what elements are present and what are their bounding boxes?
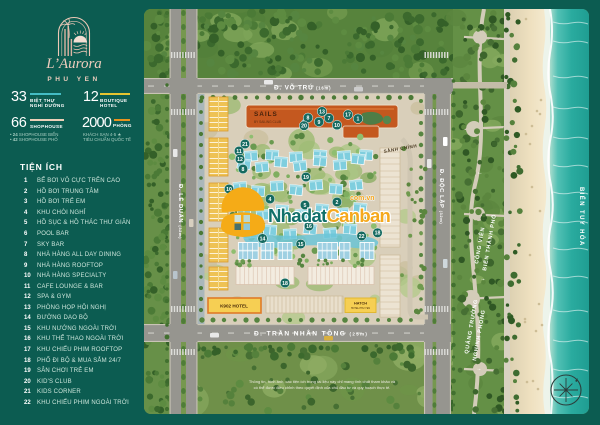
svg-text:1: 1 (357, 117, 360, 123)
svg-text:HATCH: HATCH (354, 302, 367, 306)
svg-text:Đ. LÊ DUẨN (32m): Đ. LÊ DUẨN (32m) (177, 184, 185, 239)
svg-text:14: 14 (260, 236, 266, 242)
svg-text:4: 4 (269, 197, 272, 203)
svg-text:BY SAILING CLUB: BY SAILING CLUB (254, 120, 281, 124)
svg-text:BIỂN TUY HÒA: BIỂN TUY HÒA (578, 187, 586, 247)
svg-text:NhadatCanban: NhadatCanban (268, 205, 391, 226)
svg-text:Đ. ĐỘC LẬP (32m): Đ. ĐỘC LẬP (32m) (438, 169, 446, 224)
svg-text:7: 7 (328, 116, 331, 122)
svg-text:10: 10 (334, 123, 340, 129)
svg-text:SAILS: SAILS (254, 111, 278, 118)
svg-text:18: 18 (282, 281, 288, 287)
svg-text:22: 22 (359, 234, 365, 240)
svg-text:có thể được điều chỉnh theo qu: có thể được điều chỉnh theo quyết định c… (254, 385, 391, 390)
svg-text:Thông tin, hình ảnh, các tiện: Thông tin, hình ảnh, các tiện ích trong … (249, 379, 396, 384)
svg-text:15: 15 (298, 242, 304, 248)
svg-text:8: 8 (307, 116, 310, 122)
svg-text:9: 9 (318, 120, 321, 126)
svg-text:19: 19 (303, 175, 309, 181)
svg-text:11: 11 (236, 149, 242, 155)
svg-text:17: 17 (345, 113, 351, 119)
svg-text:12: 12 (237, 157, 243, 163)
svg-text:13: 13 (319, 109, 325, 115)
svg-text:K902 HOTEL: K902 HOTEL (220, 304, 248, 309)
svg-text:20: 20 (301, 124, 307, 130)
svg-text:8: 8 (242, 167, 245, 173)
svg-text:21: 21 (242, 142, 248, 148)
svg-text:com.vn: com.vn (350, 195, 375, 202)
svg-text:18: 18 (375, 231, 381, 237)
svg-text:HOTEL PHU YEN: HOTEL PHU YEN (351, 307, 370, 310)
